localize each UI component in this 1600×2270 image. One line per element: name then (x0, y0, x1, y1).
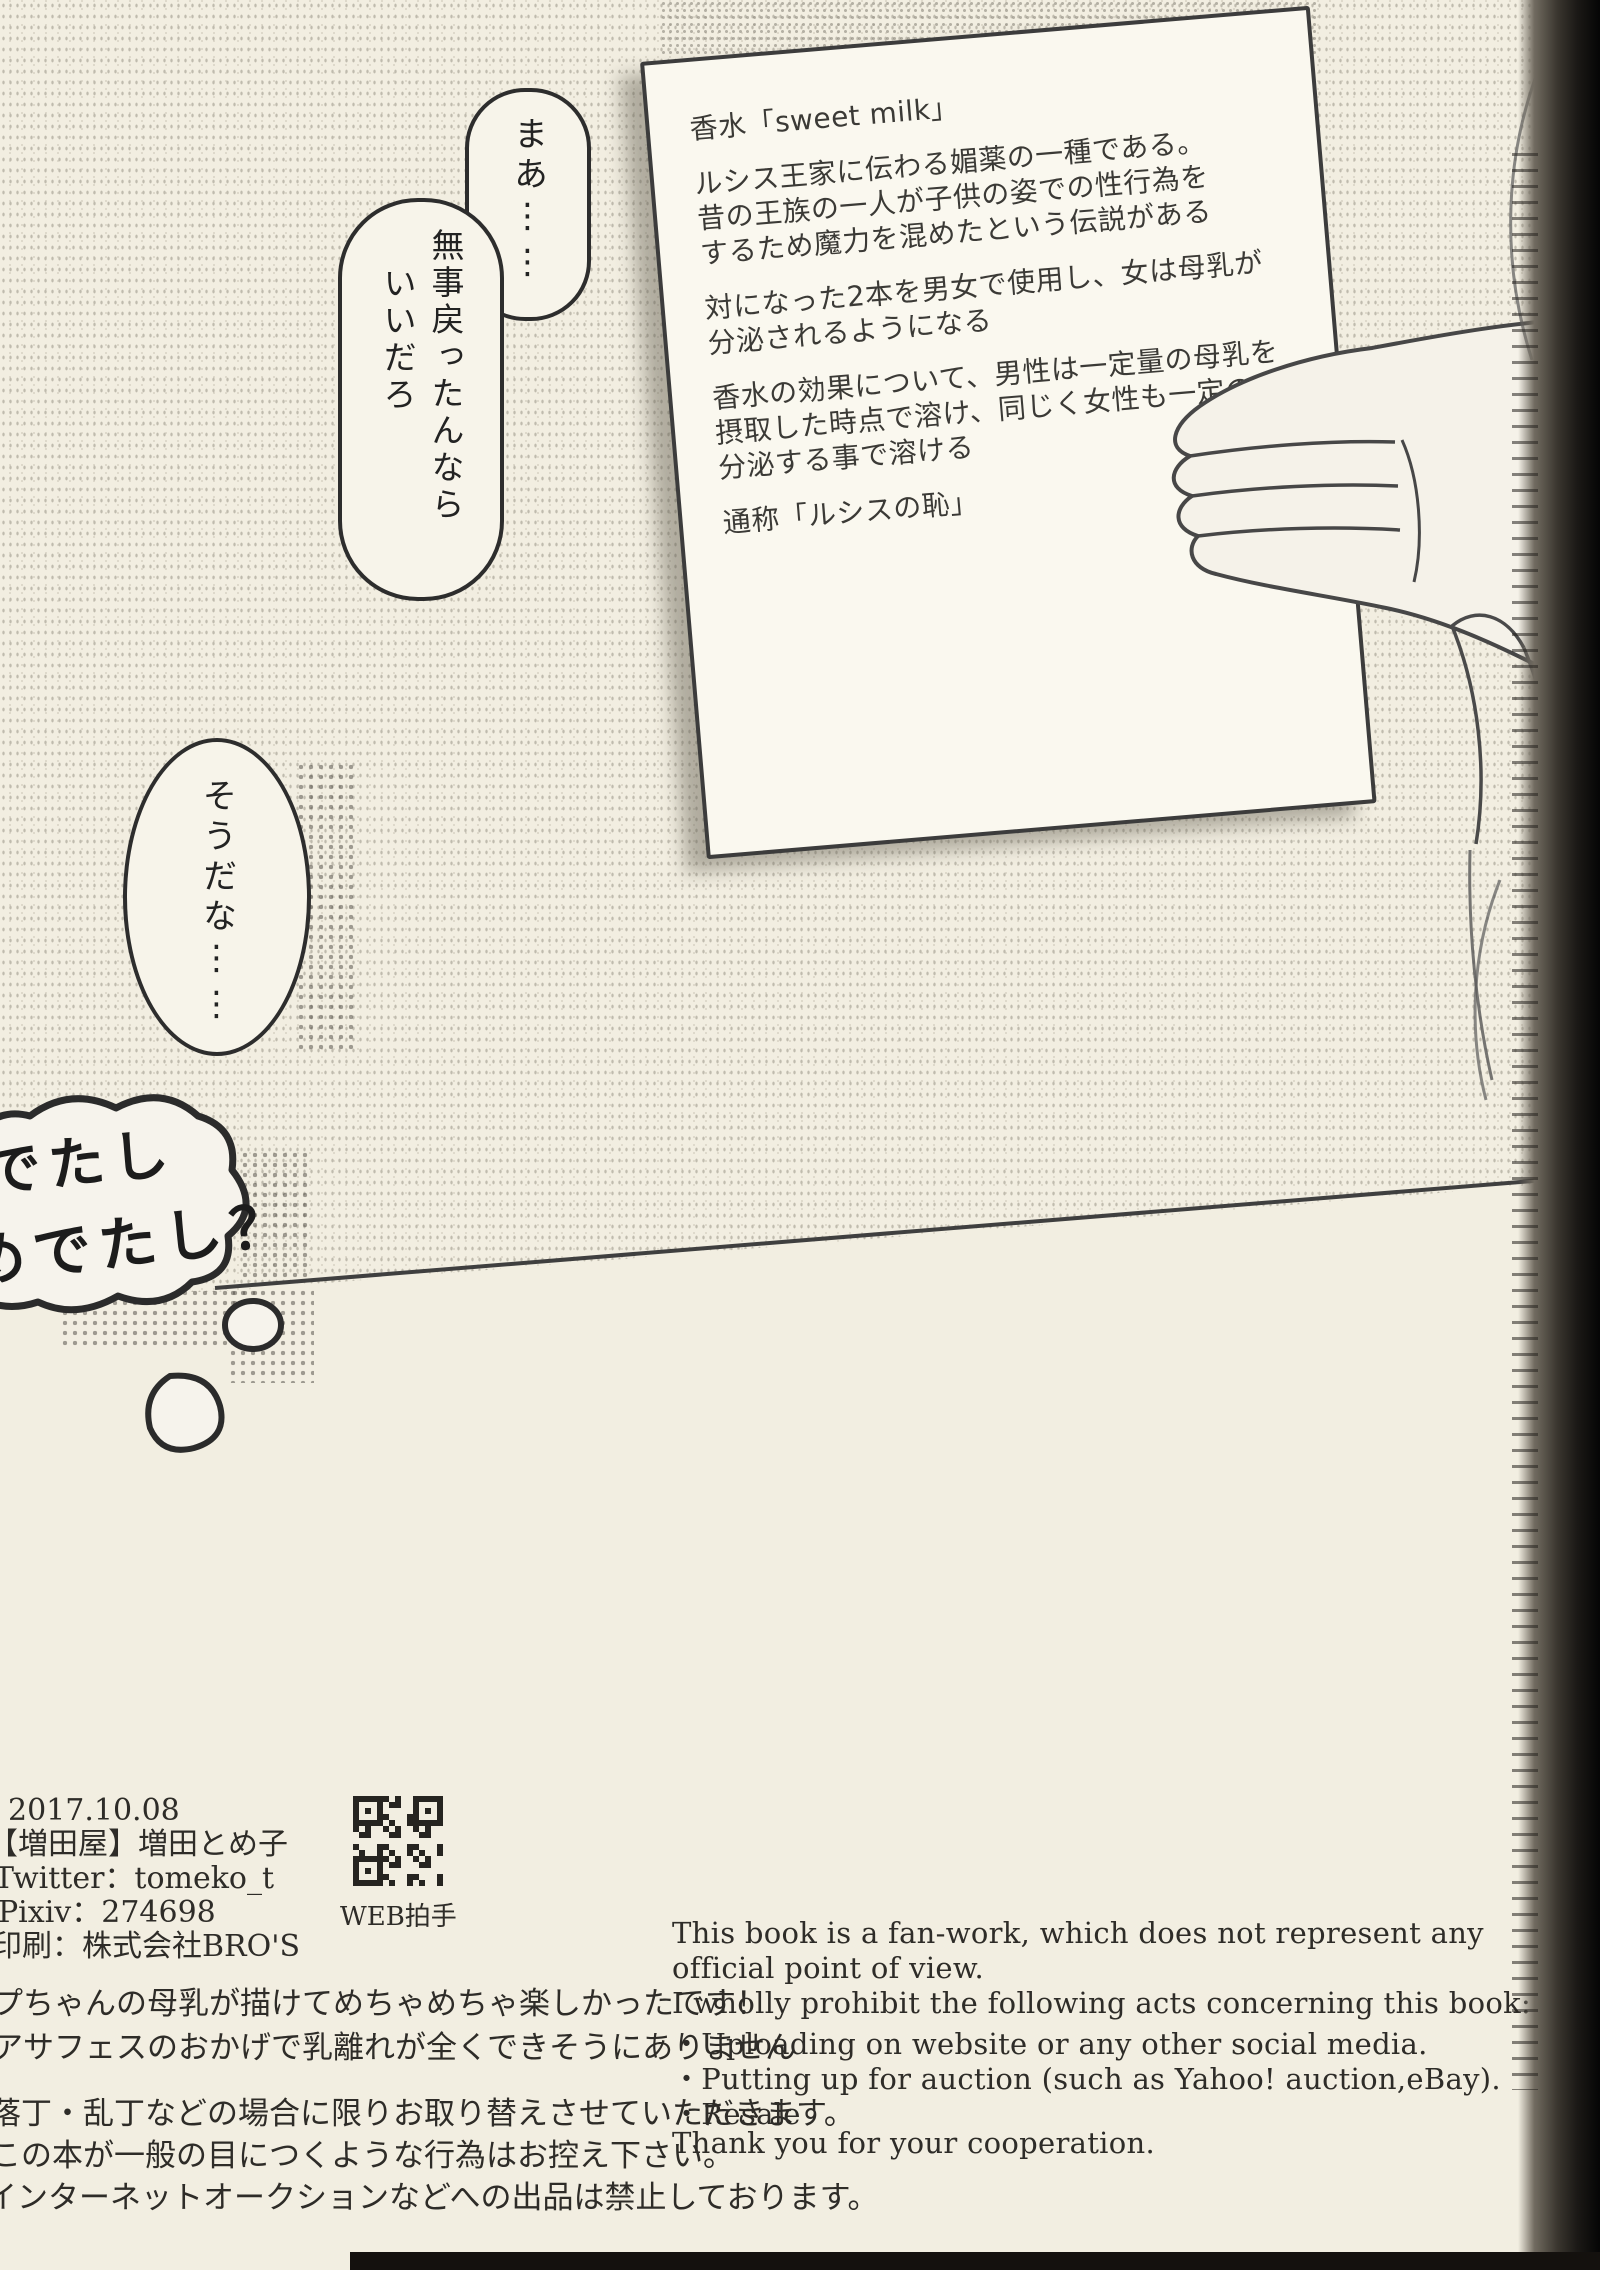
twitter-handle: Twitter：tomeko_t (0, 1862, 300, 1896)
notice-line: この本が一般の目につくような行為はお控え下さい。 (0, 2130, 734, 2175)
colophon: 2017.10.08 【増田屋】増田とめ子 Twitter：tomeko_t P… (0, 1794, 300, 1964)
speech-bubble-buji: 無事戻ったんなら いいだろ (338, 198, 504, 601)
speech-text: 無事戻ったんなら いいだろ (373, 202, 469, 597)
web-clap-qr: WEB拍手 (340, 1796, 457, 1933)
disclaimer-line: This book is a fan-work, which does not … (672, 1916, 1484, 1950)
paper-note: 香水「sweet milk」 ルシス王家に伝わる媚薬の一種である。 昔の王族の一… (640, 6, 1377, 859)
afterword-line: プちゃんの母乳が描けてめちゃめちゃ楽しかったです！ (0, 1978, 767, 2023)
speech-text: そうだな⋮⋮ (193, 742, 242, 1052)
scan-bottom-edge (350, 2252, 1600, 2270)
thought-cloud-tail (148, 1376, 221, 1450)
notice-line: インターネットオークションなどへの出品は禁止しております。 (0, 2172, 879, 2217)
speech-text-column: いいだろ (373, 266, 421, 597)
speech-text-column: 無事戻ったんなら (421, 228, 469, 597)
thought-cloud-tail (225, 1301, 281, 1349)
speech-bubble-souda: そうだな⋮⋮ (123, 738, 311, 1056)
disclaimer-line: Thank you for your cooperation. (672, 2126, 1155, 2160)
page-edge-hatching (1512, 140, 1538, 2090)
speech-text: まあ⋮⋮ (504, 92, 553, 317)
disclaimer-line: I wholly prohibit the following acts con… (672, 1986, 1531, 2020)
qr-code (353, 1796, 443, 1886)
printer-credit: 印刷：株式会社BRO'S (0, 1930, 300, 1964)
doujinshi-afterword-page: 香水「sweet milk」 ルシス王家に伝わる媚薬の一種である。 昔の王族の一… (0, 0, 1600, 2270)
disclaimer-line: official point of view. (672, 1951, 984, 1985)
pixiv-id: Pixiv：274698 (0, 1896, 300, 1930)
publication-date: 2017.10.08 (8, 1794, 300, 1828)
qr-caption: WEB拍手 (340, 1896, 457, 1933)
circle-author: 【増田屋】増田とめ子 (0, 1828, 300, 1862)
